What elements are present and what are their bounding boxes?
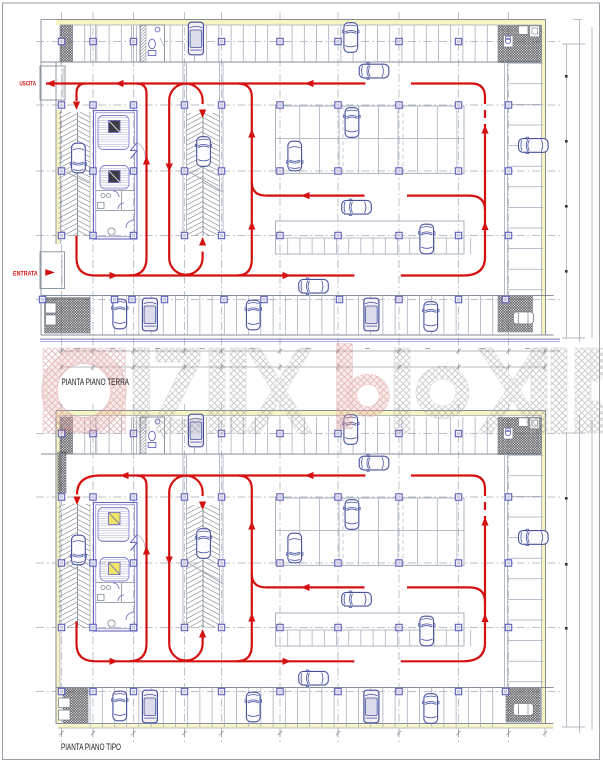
svg-text:PIANTA PIANO TERRA: PIANTA PIANO TERRA xyxy=(62,377,130,387)
svg-text:ENTRATA: ENTRATA xyxy=(13,272,38,278)
svg-text:USCITA: USCITA xyxy=(20,81,37,88)
svg-text:PIANTA PIANO TIPO: PIANTA PIANO TIPO xyxy=(61,742,121,752)
